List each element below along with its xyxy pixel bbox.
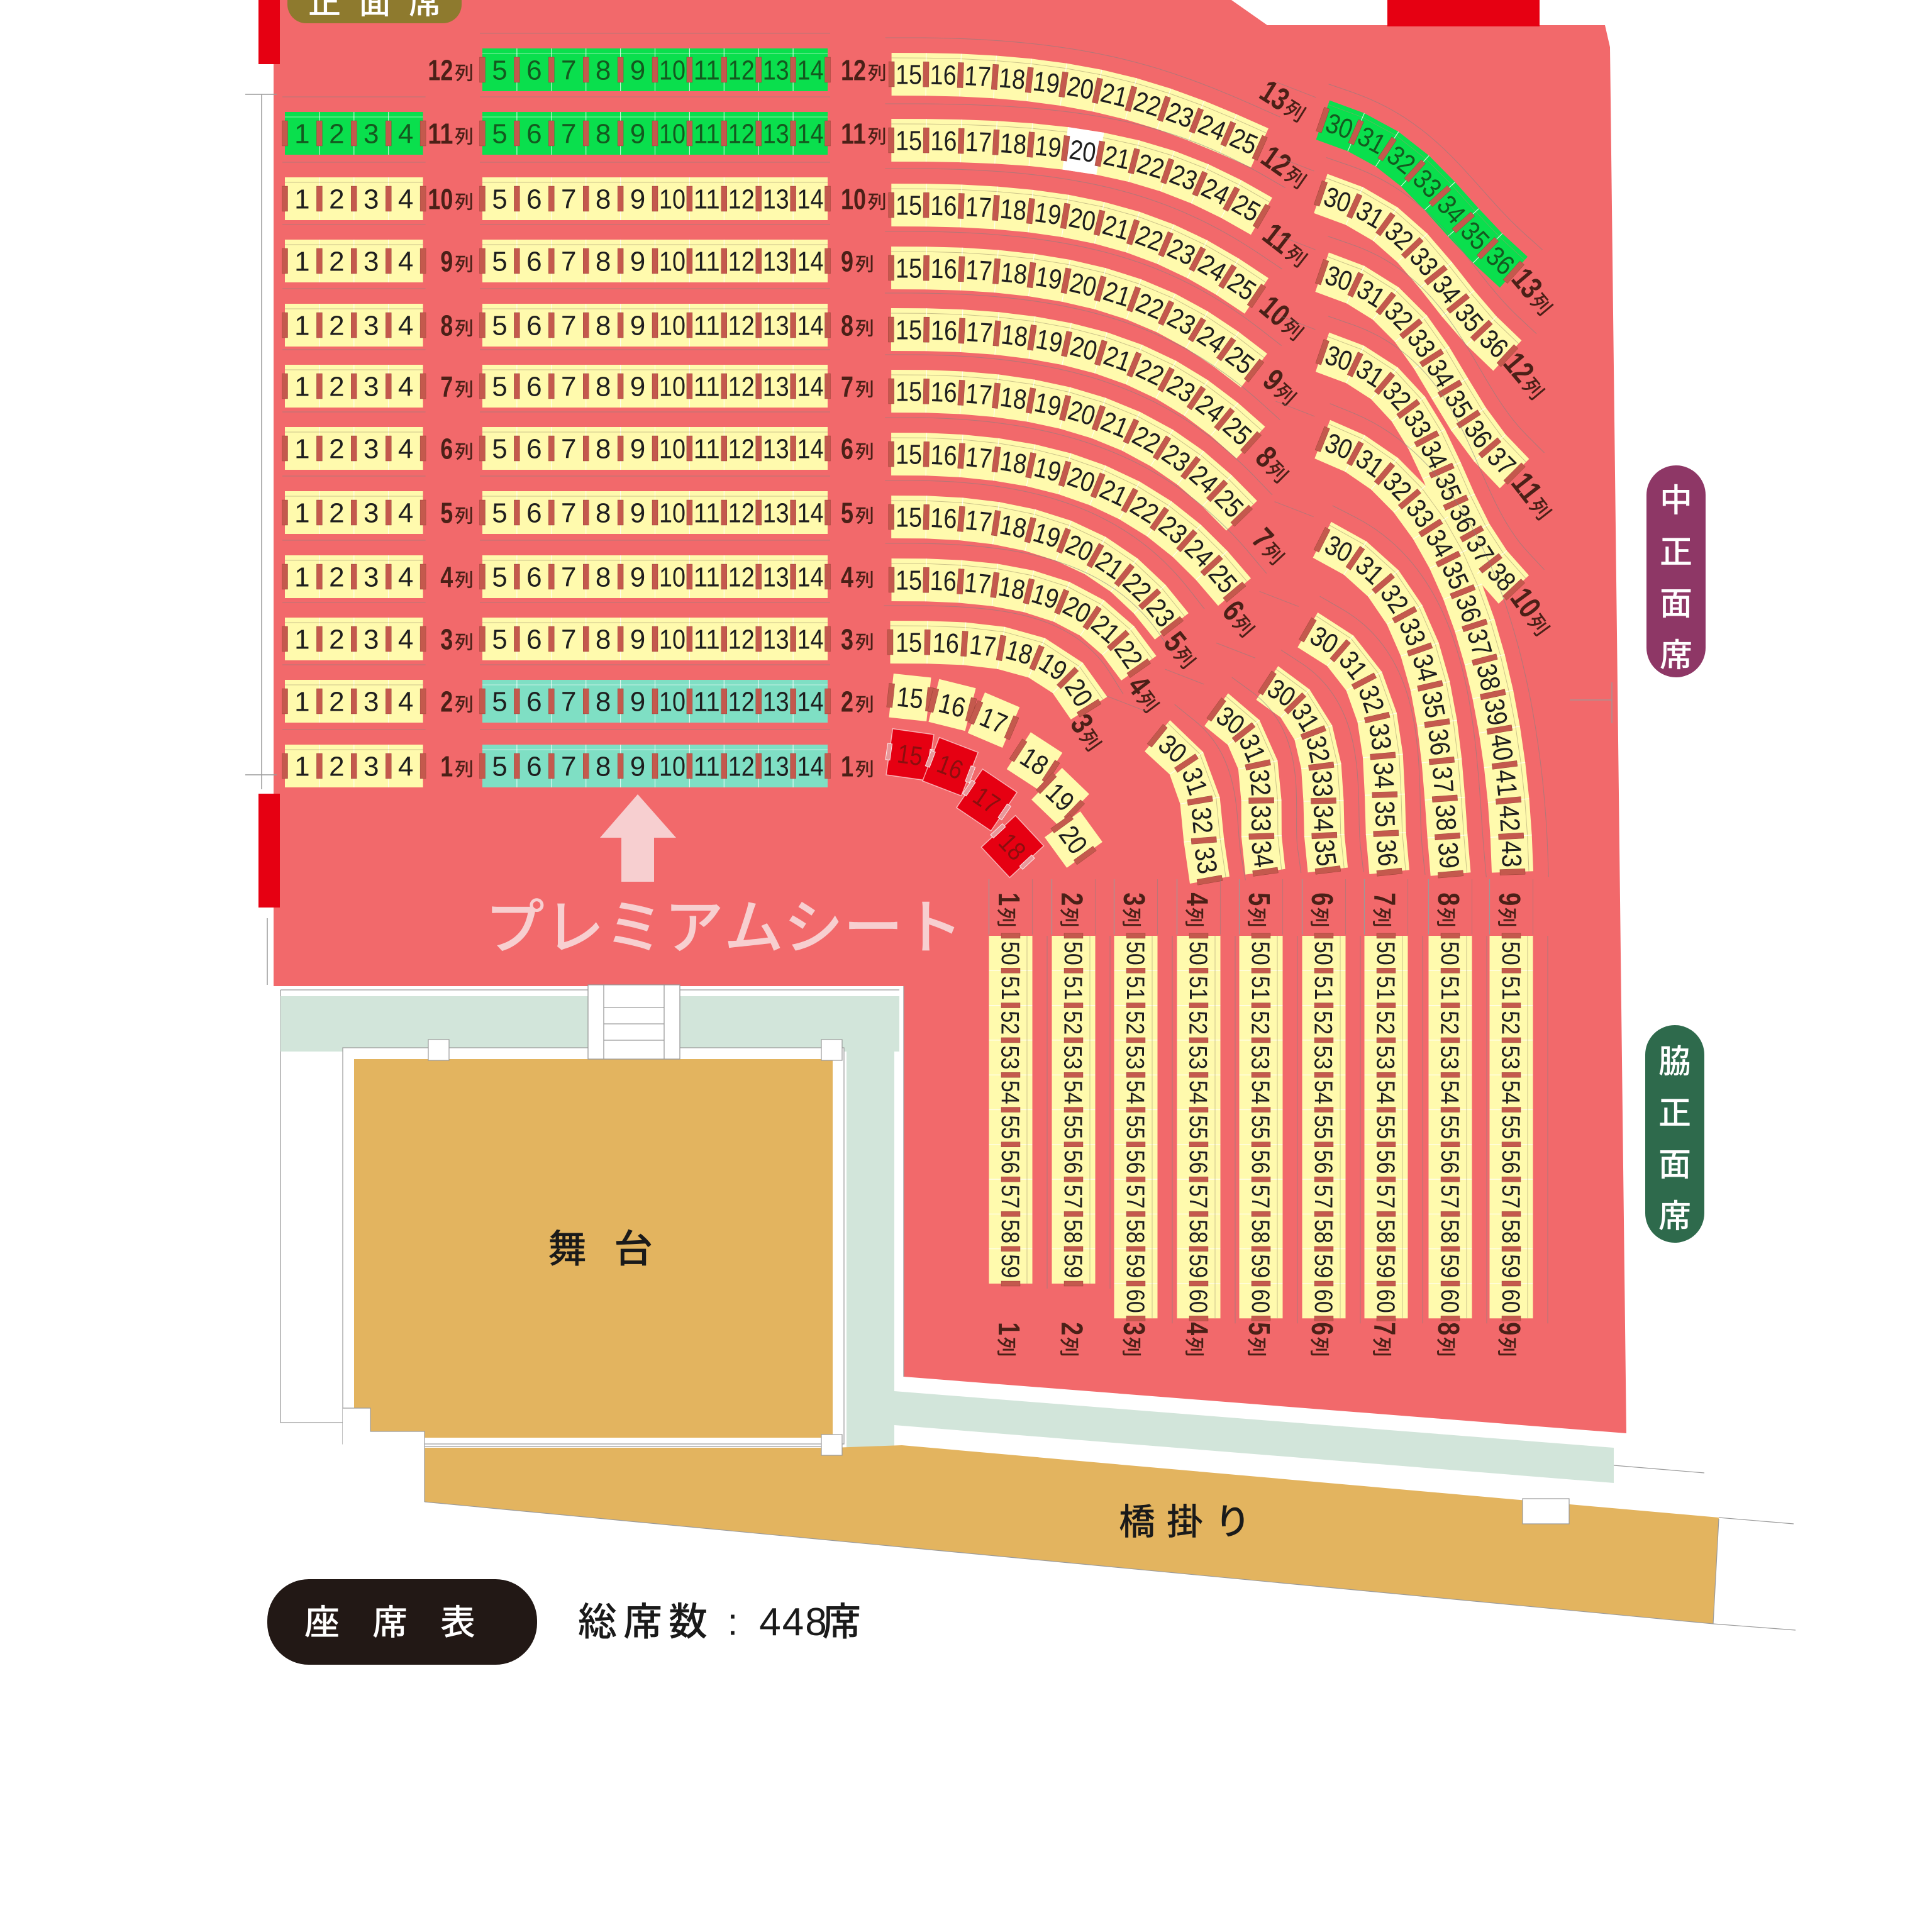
svg-text:4: 4 xyxy=(398,372,413,402)
svg-text:6: 6 xyxy=(526,498,541,529)
svg-text:55: 55 xyxy=(996,1115,1024,1139)
svg-text:7: 7 xyxy=(561,247,576,277)
svg-text:7: 7 xyxy=(561,752,576,782)
svg-text:59: 59 xyxy=(1246,1254,1274,1278)
svg-text:54: 54 xyxy=(1372,1080,1399,1104)
svg-text::: : xyxy=(728,1601,738,1643)
svg-text:7: 7 xyxy=(1367,1322,1401,1335)
svg-text:4: 4 xyxy=(398,119,413,150)
svg-text:10: 10 xyxy=(659,687,686,718)
svg-text:36: 36 xyxy=(1370,838,1403,868)
svg-text:7: 7 xyxy=(561,434,576,465)
svg-text:7: 7 xyxy=(561,184,576,215)
svg-text:8: 8 xyxy=(440,309,453,341)
svg-text:58: 58 xyxy=(1059,1219,1087,1243)
svg-text:56: 56 xyxy=(1246,1150,1274,1174)
svg-text:13: 13 xyxy=(763,498,789,529)
svg-text:18: 18 xyxy=(999,319,1030,353)
svg-text:4: 4 xyxy=(398,498,413,529)
svg-text:57: 57 xyxy=(1246,1185,1274,1209)
svg-text:55: 55 xyxy=(1309,1115,1337,1139)
svg-text:18: 18 xyxy=(997,62,1026,95)
svg-text:6: 6 xyxy=(526,752,541,782)
svg-text:15: 15 xyxy=(896,126,922,157)
svg-text:1: 1 xyxy=(294,687,309,718)
svg-text:10: 10 xyxy=(659,184,686,215)
svg-text:16: 16 xyxy=(930,377,958,409)
svg-text:18: 18 xyxy=(999,194,1028,227)
svg-text:2: 2 xyxy=(1055,892,1088,906)
svg-text:33: 33 xyxy=(1363,721,1397,752)
svg-text:17: 17 xyxy=(968,630,997,663)
svg-text:11: 11 xyxy=(694,687,720,718)
svg-text:42: 42 xyxy=(1493,804,1526,833)
svg-text:7: 7 xyxy=(440,370,453,402)
svg-text:52: 52 xyxy=(1121,1011,1149,1035)
svg-text:11: 11 xyxy=(694,119,720,150)
svg-text:1: 1 xyxy=(294,247,309,277)
svg-text:3: 3 xyxy=(1117,1322,1150,1335)
svg-text:12: 12 xyxy=(728,119,755,150)
svg-text:2: 2 xyxy=(329,247,344,277)
svg-text:9: 9 xyxy=(630,55,645,86)
svg-text:5: 5 xyxy=(1242,892,1275,906)
svg-text:5: 5 xyxy=(492,498,507,529)
svg-text:54: 54 xyxy=(1309,1080,1337,1104)
svg-text:16: 16 xyxy=(930,191,957,222)
svg-text:5: 5 xyxy=(492,55,507,86)
svg-text:55: 55 xyxy=(1184,1115,1212,1139)
svg-text:8: 8 xyxy=(596,752,611,782)
svg-text:19: 19 xyxy=(1033,324,1065,359)
svg-text:13: 13 xyxy=(763,562,789,593)
svg-text:60: 60 xyxy=(1436,1289,1463,1313)
svg-text:11: 11 xyxy=(694,184,720,215)
svg-text:7: 7 xyxy=(561,687,576,718)
svg-text:2: 2 xyxy=(841,685,853,718)
svg-text:51: 51 xyxy=(996,976,1024,1000)
svg-text:9: 9 xyxy=(630,311,645,341)
svg-text:5: 5 xyxy=(492,625,507,655)
svg-text:55: 55 xyxy=(1372,1115,1399,1139)
svg-text:17: 17 xyxy=(964,441,994,475)
svg-text:9: 9 xyxy=(630,372,645,402)
svg-text:8: 8 xyxy=(596,562,611,593)
svg-text:6: 6 xyxy=(526,247,541,277)
svg-text:1: 1 xyxy=(440,750,453,782)
svg-text:1: 1 xyxy=(294,184,309,215)
svg-text:4: 4 xyxy=(398,752,413,782)
svg-text:16: 16 xyxy=(930,502,958,535)
svg-text:5: 5 xyxy=(841,496,853,529)
svg-text:33: 33 xyxy=(1245,805,1276,831)
svg-text:6: 6 xyxy=(1305,892,1338,906)
svg-text:13: 13 xyxy=(763,372,789,402)
svg-text:15: 15 xyxy=(896,565,922,596)
svg-text:58: 58 xyxy=(1436,1219,1463,1243)
svg-text:1: 1 xyxy=(294,752,309,782)
svg-text:37: 37 xyxy=(1426,765,1459,794)
svg-text:58: 58 xyxy=(1121,1219,1149,1243)
svg-text:14: 14 xyxy=(797,372,824,402)
svg-text:7: 7 xyxy=(561,372,576,402)
svg-text:60: 60 xyxy=(1121,1289,1149,1313)
svg-text:58: 58 xyxy=(996,1219,1024,1243)
svg-text:51: 51 xyxy=(1184,976,1212,1000)
svg-text:11: 11 xyxy=(694,372,720,402)
svg-text:59: 59 xyxy=(1497,1254,1524,1278)
svg-text:5: 5 xyxy=(492,434,507,465)
svg-text:39: 39 xyxy=(1432,841,1465,870)
svg-text:56: 56 xyxy=(1497,1150,1524,1174)
svg-text:52: 52 xyxy=(1246,1011,1274,1035)
svg-text:5: 5 xyxy=(492,184,507,215)
svg-text:9: 9 xyxy=(630,752,645,782)
svg-text:52: 52 xyxy=(1309,1011,1337,1035)
svg-text:12: 12 xyxy=(728,311,755,341)
svg-text:18: 18 xyxy=(998,445,1030,480)
svg-text:6: 6 xyxy=(526,372,541,402)
svg-text:11: 11 xyxy=(694,498,720,529)
svg-text:57: 57 xyxy=(1436,1185,1463,1209)
svg-text:6: 6 xyxy=(526,55,541,86)
svg-text:12: 12 xyxy=(728,55,755,86)
svg-text:50: 50 xyxy=(1184,941,1212,965)
svg-text:10: 10 xyxy=(428,182,453,215)
svg-text:56: 56 xyxy=(1372,1150,1399,1174)
svg-text:11: 11 xyxy=(694,562,720,593)
svg-text:35: 35 xyxy=(1308,838,1342,868)
svg-text:50: 50 xyxy=(996,941,1024,965)
svg-text:7: 7 xyxy=(561,311,576,341)
svg-text:1: 1 xyxy=(841,750,853,782)
svg-text:2: 2 xyxy=(329,434,344,465)
svg-text:12: 12 xyxy=(428,53,453,86)
svg-text:60: 60 xyxy=(1246,1289,1274,1313)
svg-text:3: 3 xyxy=(364,434,379,465)
svg-text:12: 12 xyxy=(728,434,755,465)
svg-text:1: 1 xyxy=(294,311,309,341)
svg-text:13: 13 xyxy=(763,687,789,718)
svg-text:6: 6 xyxy=(526,687,541,718)
svg-text:6: 6 xyxy=(1305,1322,1338,1335)
svg-text:5: 5 xyxy=(492,372,507,402)
svg-text:2: 2 xyxy=(329,498,344,529)
svg-text:16: 16 xyxy=(930,126,957,157)
svg-text:1: 1 xyxy=(294,434,309,465)
svg-text:18: 18 xyxy=(999,128,1028,160)
svg-text:17: 17 xyxy=(965,316,993,349)
svg-text:19: 19 xyxy=(1031,66,1062,100)
svg-text:55: 55 xyxy=(1121,1115,1149,1139)
svg-text:57: 57 xyxy=(1309,1185,1337,1209)
svg-text:50: 50 xyxy=(1246,941,1274,965)
svg-text:60: 60 xyxy=(1184,1289,1212,1313)
svg-text:12: 12 xyxy=(728,184,755,215)
svg-text:9: 9 xyxy=(630,434,645,465)
svg-text:53: 53 xyxy=(996,1046,1024,1070)
svg-text:3: 3 xyxy=(440,623,453,655)
svg-text:3: 3 xyxy=(364,752,379,782)
svg-text:59: 59 xyxy=(1121,1254,1149,1278)
svg-text:50: 50 xyxy=(1309,941,1337,965)
svg-text:11: 11 xyxy=(694,434,720,465)
svg-text:32: 32 xyxy=(1185,806,1218,835)
svg-text:16: 16 xyxy=(930,253,957,285)
svg-text:16: 16 xyxy=(930,440,958,472)
svg-text:53: 53 xyxy=(1121,1046,1149,1070)
svg-text:4: 4 xyxy=(398,184,413,215)
svg-text:9: 9 xyxy=(630,184,645,215)
svg-text:5: 5 xyxy=(1242,1322,1275,1335)
svg-text:4: 4 xyxy=(1180,1322,1213,1335)
svg-text:7: 7 xyxy=(561,119,576,150)
svg-text:53: 53 xyxy=(1309,1046,1337,1070)
svg-text:10: 10 xyxy=(659,752,686,782)
svg-text:18: 18 xyxy=(996,571,1028,606)
svg-text:53: 53 xyxy=(1184,1046,1212,1070)
svg-text:13: 13 xyxy=(763,311,789,341)
svg-text:55: 55 xyxy=(1059,1115,1087,1139)
svg-text:11: 11 xyxy=(694,247,720,277)
svg-text:32: 32 xyxy=(1243,768,1276,797)
svg-text:5: 5 xyxy=(492,311,507,341)
svg-text:4: 4 xyxy=(398,562,413,593)
svg-text:60: 60 xyxy=(1497,1289,1524,1313)
svg-text:15: 15 xyxy=(896,440,922,470)
svg-text:2: 2 xyxy=(329,752,344,782)
svg-text:50: 50 xyxy=(1059,941,1087,965)
svg-text:12: 12 xyxy=(728,372,755,402)
svg-text:8: 8 xyxy=(596,311,611,341)
svg-text:9: 9 xyxy=(440,245,453,277)
svg-text:52: 52 xyxy=(1497,1011,1524,1035)
svg-text:58: 58 xyxy=(1497,1219,1524,1243)
svg-text:4: 4 xyxy=(398,687,413,718)
svg-text:8: 8 xyxy=(596,625,611,655)
svg-text:2: 2 xyxy=(440,685,453,718)
svg-text:10: 10 xyxy=(659,498,686,529)
svg-text:13: 13 xyxy=(763,625,789,655)
svg-text:38: 38 xyxy=(1430,803,1462,831)
svg-text:7: 7 xyxy=(1367,892,1401,906)
svg-text:1: 1 xyxy=(294,562,309,593)
svg-text:15: 15 xyxy=(896,191,922,221)
svg-text:59: 59 xyxy=(1309,1254,1337,1278)
svg-text:7: 7 xyxy=(841,370,853,402)
svg-text:51: 51 xyxy=(1436,976,1463,1000)
svg-text:12: 12 xyxy=(728,562,755,593)
svg-text:52: 52 xyxy=(996,1011,1024,1035)
svg-text:35: 35 xyxy=(1369,801,1401,828)
svg-text:3: 3 xyxy=(364,184,379,215)
svg-text:52: 52 xyxy=(1059,1011,1087,1035)
svg-text:10: 10 xyxy=(659,119,686,150)
svg-text:51: 51 xyxy=(1497,976,1524,1000)
svg-text:3: 3 xyxy=(364,311,379,341)
svg-text:11: 11 xyxy=(428,117,453,150)
svg-text:52: 52 xyxy=(1184,1011,1212,1035)
svg-text:7: 7 xyxy=(561,55,576,86)
svg-text:17: 17 xyxy=(964,378,993,411)
svg-text:57: 57 xyxy=(1121,1185,1149,1209)
svg-text:8: 8 xyxy=(596,119,611,150)
svg-text:3: 3 xyxy=(364,687,379,718)
svg-text:3: 3 xyxy=(364,119,379,150)
svg-text:1: 1 xyxy=(294,625,309,655)
svg-text:57: 57 xyxy=(1059,1185,1087,1209)
svg-text:19: 19 xyxy=(1033,261,1064,296)
svg-text:7: 7 xyxy=(561,498,576,529)
svg-text:8: 8 xyxy=(596,247,611,277)
svg-text:55: 55 xyxy=(1497,1115,1524,1139)
svg-text:15: 15 xyxy=(895,682,924,715)
svg-text:11: 11 xyxy=(694,625,720,655)
svg-text:1: 1 xyxy=(992,892,1025,906)
svg-text:43: 43 xyxy=(1496,840,1527,868)
svg-text:34: 34 xyxy=(1307,805,1339,832)
svg-text:34: 34 xyxy=(1245,839,1279,869)
svg-text:14: 14 xyxy=(797,247,824,277)
svg-text:11: 11 xyxy=(841,117,866,150)
svg-text:12: 12 xyxy=(728,247,755,277)
svg-text:20: 20 xyxy=(1065,70,1096,106)
svg-text:13: 13 xyxy=(763,184,789,215)
svg-text:9: 9 xyxy=(630,498,645,529)
svg-text:59: 59 xyxy=(1059,1254,1087,1278)
svg-text:3: 3 xyxy=(364,498,379,529)
svg-text:56: 56 xyxy=(1436,1150,1463,1174)
svg-text:17: 17 xyxy=(963,504,993,538)
svg-text:53: 53 xyxy=(1372,1046,1399,1070)
svg-text:14: 14 xyxy=(797,119,824,150)
svg-text:12: 12 xyxy=(728,752,755,782)
svg-text:2: 2 xyxy=(329,372,344,402)
svg-text:4: 4 xyxy=(440,560,453,593)
svg-text:8: 8 xyxy=(596,434,611,465)
svg-text:15: 15 xyxy=(896,253,922,284)
svg-text:58: 58 xyxy=(1246,1219,1274,1243)
svg-text:3: 3 xyxy=(364,625,379,655)
svg-text:10: 10 xyxy=(659,247,686,277)
svg-text:33: 33 xyxy=(1306,770,1338,798)
svg-text:9: 9 xyxy=(630,625,645,655)
svg-text:6: 6 xyxy=(526,119,541,150)
svg-text:14: 14 xyxy=(797,562,824,593)
svg-text:15: 15 xyxy=(896,628,922,658)
svg-text:10: 10 xyxy=(659,372,686,402)
svg-text:9: 9 xyxy=(1492,1322,1526,1335)
svg-text:8: 8 xyxy=(1431,892,1465,906)
svg-text:8: 8 xyxy=(1431,1322,1465,1335)
svg-text:52: 52 xyxy=(1436,1011,1463,1035)
svg-text:14: 14 xyxy=(797,434,824,465)
svg-text:2: 2 xyxy=(1055,1322,1088,1335)
svg-text:59: 59 xyxy=(1436,1254,1463,1278)
svg-text:50: 50 xyxy=(1121,941,1149,965)
svg-text:11: 11 xyxy=(694,55,720,86)
svg-text:51: 51 xyxy=(1121,976,1149,1000)
svg-text:53: 53 xyxy=(1059,1046,1087,1070)
svg-text:53: 53 xyxy=(1246,1046,1274,1070)
svg-text:54: 54 xyxy=(1436,1080,1463,1104)
svg-text:17: 17 xyxy=(963,60,992,92)
svg-text:57: 57 xyxy=(996,1185,1024,1209)
svg-text:54: 54 xyxy=(1059,1080,1087,1104)
svg-text:17: 17 xyxy=(965,191,993,223)
svg-text:51: 51 xyxy=(1246,976,1274,1000)
svg-text:18: 18 xyxy=(999,257,1029,291)
svg-text:57: 57 xyxy=(1497,1185,1524,1209)
svg-text:56: 56 xyxy=(996,1150,1024,1174)
svg-text:11: 11 xyxy=(694,752,720,782)
svg-text:10: 10 xyxy=(659,562,686,593)
svg-text:59: 59 xyxy=(996,1254,1024,1278)
svg-text:36: 36 xyxy=(1422,727,1456,757)
svg-text:56: 56 xyxy=(1184,1150,1212,1174)
svg-text:4: 4 xyxy=(398,247,413,277)
svg-text:54: 54 xyxy=(996,1080,1024,1104)
svg-text:5: 5 xyxy=(492,562,507,593)
svg-text:15: 15 xyxy=(896,315,922,346)
svg-text:58: 58 xyxy=(1372,1219,1399,1243)
svg-text:7: 7 xyxy=(561,625,576,655)
svg-text:18: 18 xyxy=(998,382,1028,416)
svg-text:14: 14 xyxy=(797,625,824,655)
svg-text:8: 8 xyxy=(596,184,611,215)
svg-text:54: 54 xyxy=(1497,1080,1524,1104)
svg-text:12: 12 xyxy=(728,687,755,718)
svg-text:12: 12 xyxy=(728,498,755,529)
svg-text:14: 14 xyxy=(797,752,824,782)
svg-text:10: 10 xyxy=(659,625,686,655)
svg-text:16: 16 xyxy=(930,315,958,347)
svg-text:1: 1 xyxy=(294,119,309,150)
svg-text:1: 1 xyxy=(992,1322,1025,1335)
svg-text:4: 4 xyxy=(1180,892,1213,906)
svg-text:8: 8 xyxy=(841,309,853,341)
svg-text:57: 57 xyxy=(1372,1185,1399,1209)
svg-text:13: 13 xyxy=(763,434,789,465)
svg-text:6: 6 xyxy=(526,184,541,215)
svg-text:20: 20 xyxy=(1067,134,1098,169)
svg-text:54: 54 xyxy=(1246,1080,1274,1104)
svg-text:8: 8 xyxy=(596,498,611,529)
svg-text:58: 58 xyxy=(1309,1219,1337,1243)
svg-text:5: 5 xyxy=(440,496,453,529)
svg-text:53: 53 xyxy=(1436,1046,1463,1070)
svg-text:9: 9 xyxy=(630,687,645,718)
svg-text:51: 51 xyxy=(1372,976,1399,1000)
svg-text:5: 5 xyxy=(492,119,507,150)
svg-text:34: 34 xyxy=(1367,762,1399,789)
svg-text:35: 35 xyxy=(1416,689,1451,720)
svg-text:2: 2 xyxy=(329,119,344,150)
svg-text:8: 8 xyxy=(596,55,611,86)
svg-text:14: 14 xyxy=(797,498,824,529)
svg-text:55: 55 xyxy=(1436,1115,1463,1139)
svg-text:10: 10 xyxy=(659,55,686,86)
svg-text:5: 5 xyxy=(492,687,507,718)
svg-text:40: 40 xyxy=(1484,732,1519,763)
svg-text:2: 2 xyxy=(329,562,344,593)
svg-text:5: 5 xyxy=(492,752,507,782)
svg-text:13: 13 xyxy=(763,247,789,277)
svg-text:56: 56 xyxy=(1059,1150,1087,1174)
svg-text:17: 17 xyxy=(963,567,992,600)
svg-text:41: 41 xyxy=(1489,768,1523,797)
svg-text:56: 56 xyxy=(1309,1150,1337,1174)
